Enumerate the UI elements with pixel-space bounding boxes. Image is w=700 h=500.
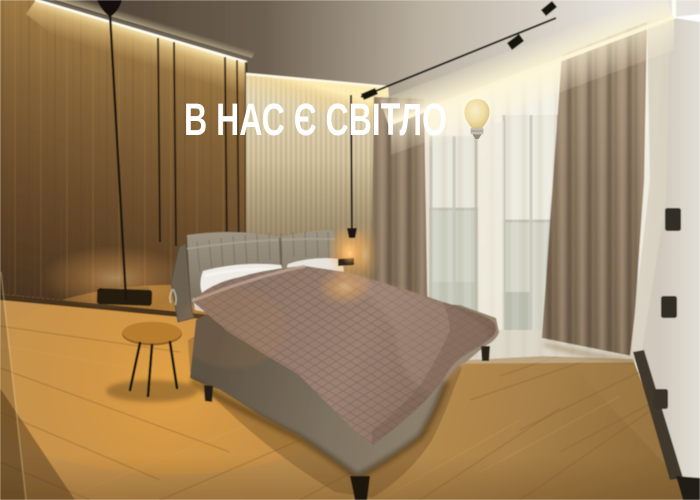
svg-text:В НАС Є СВІТЛО: В НАС Є СВІТЛО (184, 94, 447, 145)
